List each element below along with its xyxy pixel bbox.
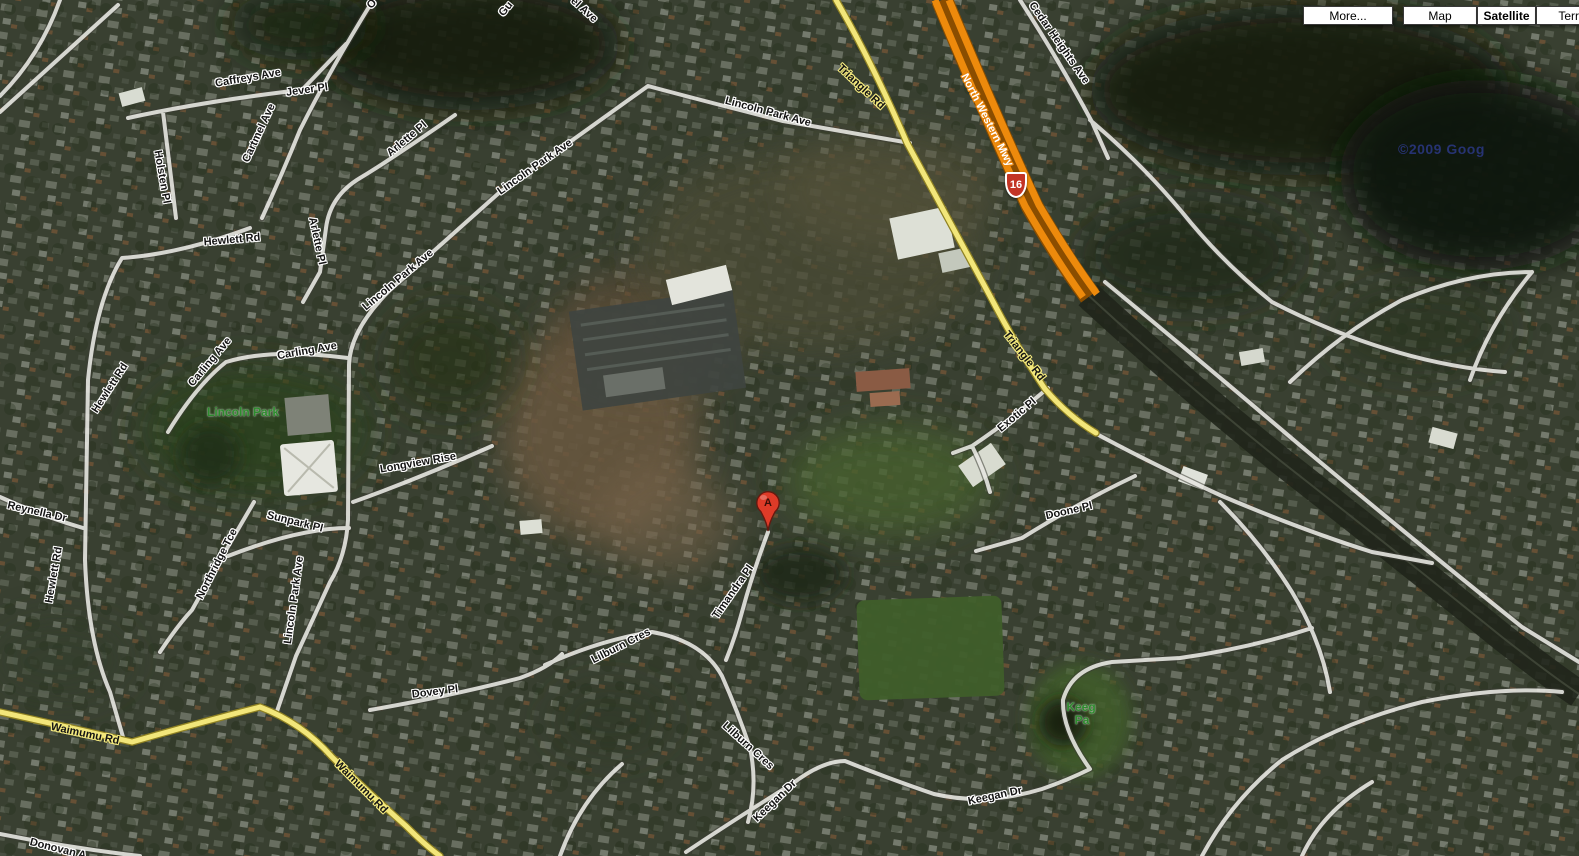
road-label: Hewlett Rd bbox=[89, 361, 130, 415]
road-label: Reynella Dr bbox=[6, 499, 68, 524]
road-label: Lincoln Park Ave bbox=[360, 247, 435, 313]
shield-number: 16 bbox=[1010, 179, 1022, 191]
road-label: Keegan Dr bbox=[751, 778, 799, 825]
more-button[interactable]: More... bbox=[1303, 6, 1393, 25]
road-label: North Western Mwy bbox=[958, 72, 1015, 169]
road-label: Waimumu Rd bbox=[332, 758, 390, 816]
google-maps-satellite-view[interactable]: Caffreys AveJever PlCartmel AveHolsten P… bbox=[0, 0, 1579, 856]
road-label: Northridge Tce bbox=[194, 527, 240, 601]
road-label: Donovan A bbox=[29, 836, 88, 856]
road-label: Dovey Pl bbox=[411, 683, 459, 701]
road-label: O bbox=[365, 0, 380, 11]
road-label: Gu bbox=[496, 0, 515, 19]
road-label: Hewlett Rd bbox=[43, 546, 65, 604]
road-label: Sunpark Pl bbox=[266, 509, 325, 535]
road-label: Triangle Rd bbox=[835, 62, 887, 112]
road-label: el Ave bbox=[568, 0, 600, 25]
road-label: Triangle Rd bbox=[1001, 329, 1047, 384]
road-label: Waimumu Rd bbox=[50, 721, 121, 747]
marker-letter: A bbox=[764, 497, 772, 509]
road-label: Cedar Heights Ave bbox=[1026, 0, 1091, 86]
road-label: Arlette Pl bbox=[306, 216, 328, 266]
road-label: Lincoln Park Ave bbox=[724, 95, 813, 129]
marker-A[interactable]: A bbox=[754, 489, 782, 533]
map-button[interactable]: Map bbox=[1403, 6, 1477, 25]
road-label: Lilburn Cres bbox=[720, 720, 776, 772]
copyright-watermark: ©2009 Goog bbox=[1398, 141, 1485, 157]
road-label: Pa bbox=[1075, 713, 1090, 727]
road-label: Exotic Pl bbox=[995, 395, 1038, 434]
road-label: Cartmel Ave bbox=[240, 102, 278, 165]
map-labels-layer: Caffreys AveJever PlCartmel AveHolsten P… bbox=[0, 0, 1579, 856]
road-label: Keegan Dr bbox=[967, 784, 1023, 807]
road-label: Lincoln Park Ave bbox=[495, 137, 574, 198]
road-label: Doone Pl bbox=[1044, 500, 1093, 522]
road-label: Timandra Pl bbox=[710, 563, 756, 621]
road-label: Lincoln Park Ave bbox=[282, 555, 306, 644]
road-label: Lilburn Cres bbox=[589, 626, 652, 666]
road-label: Holsten Pl bbox=[151, 149, 172, 204]
road-label: Keeg bbox=[1066, 700, 1095, 714]
road-label: Lincoln Park bbox=[207, 405, 279, 419]
road-label: Jever Pl bbox=[285, 81, 328, 99]
road-label: Carling Ave bbox=[186, 335, 234, 389]
road-label: Carling Ave bbox=[276, 340, 337, 362]
road-label: Caffreys Ave bbox=[214, 66, 282, 89]
road-label: Hewlett Rd bbox=[203, 232, 261, 249]
terrain-button[interactable]: Terra bbox=[1536, 6, 1579, 25]
road-label: Longview Rise bbox=[379, 450, 457, 475]
satellite-button[interactable]: Satellite bbox=[1477, 6, 1536, 25]
road-label: Arlette Pl bbox=[385, 119, 430, 159]
